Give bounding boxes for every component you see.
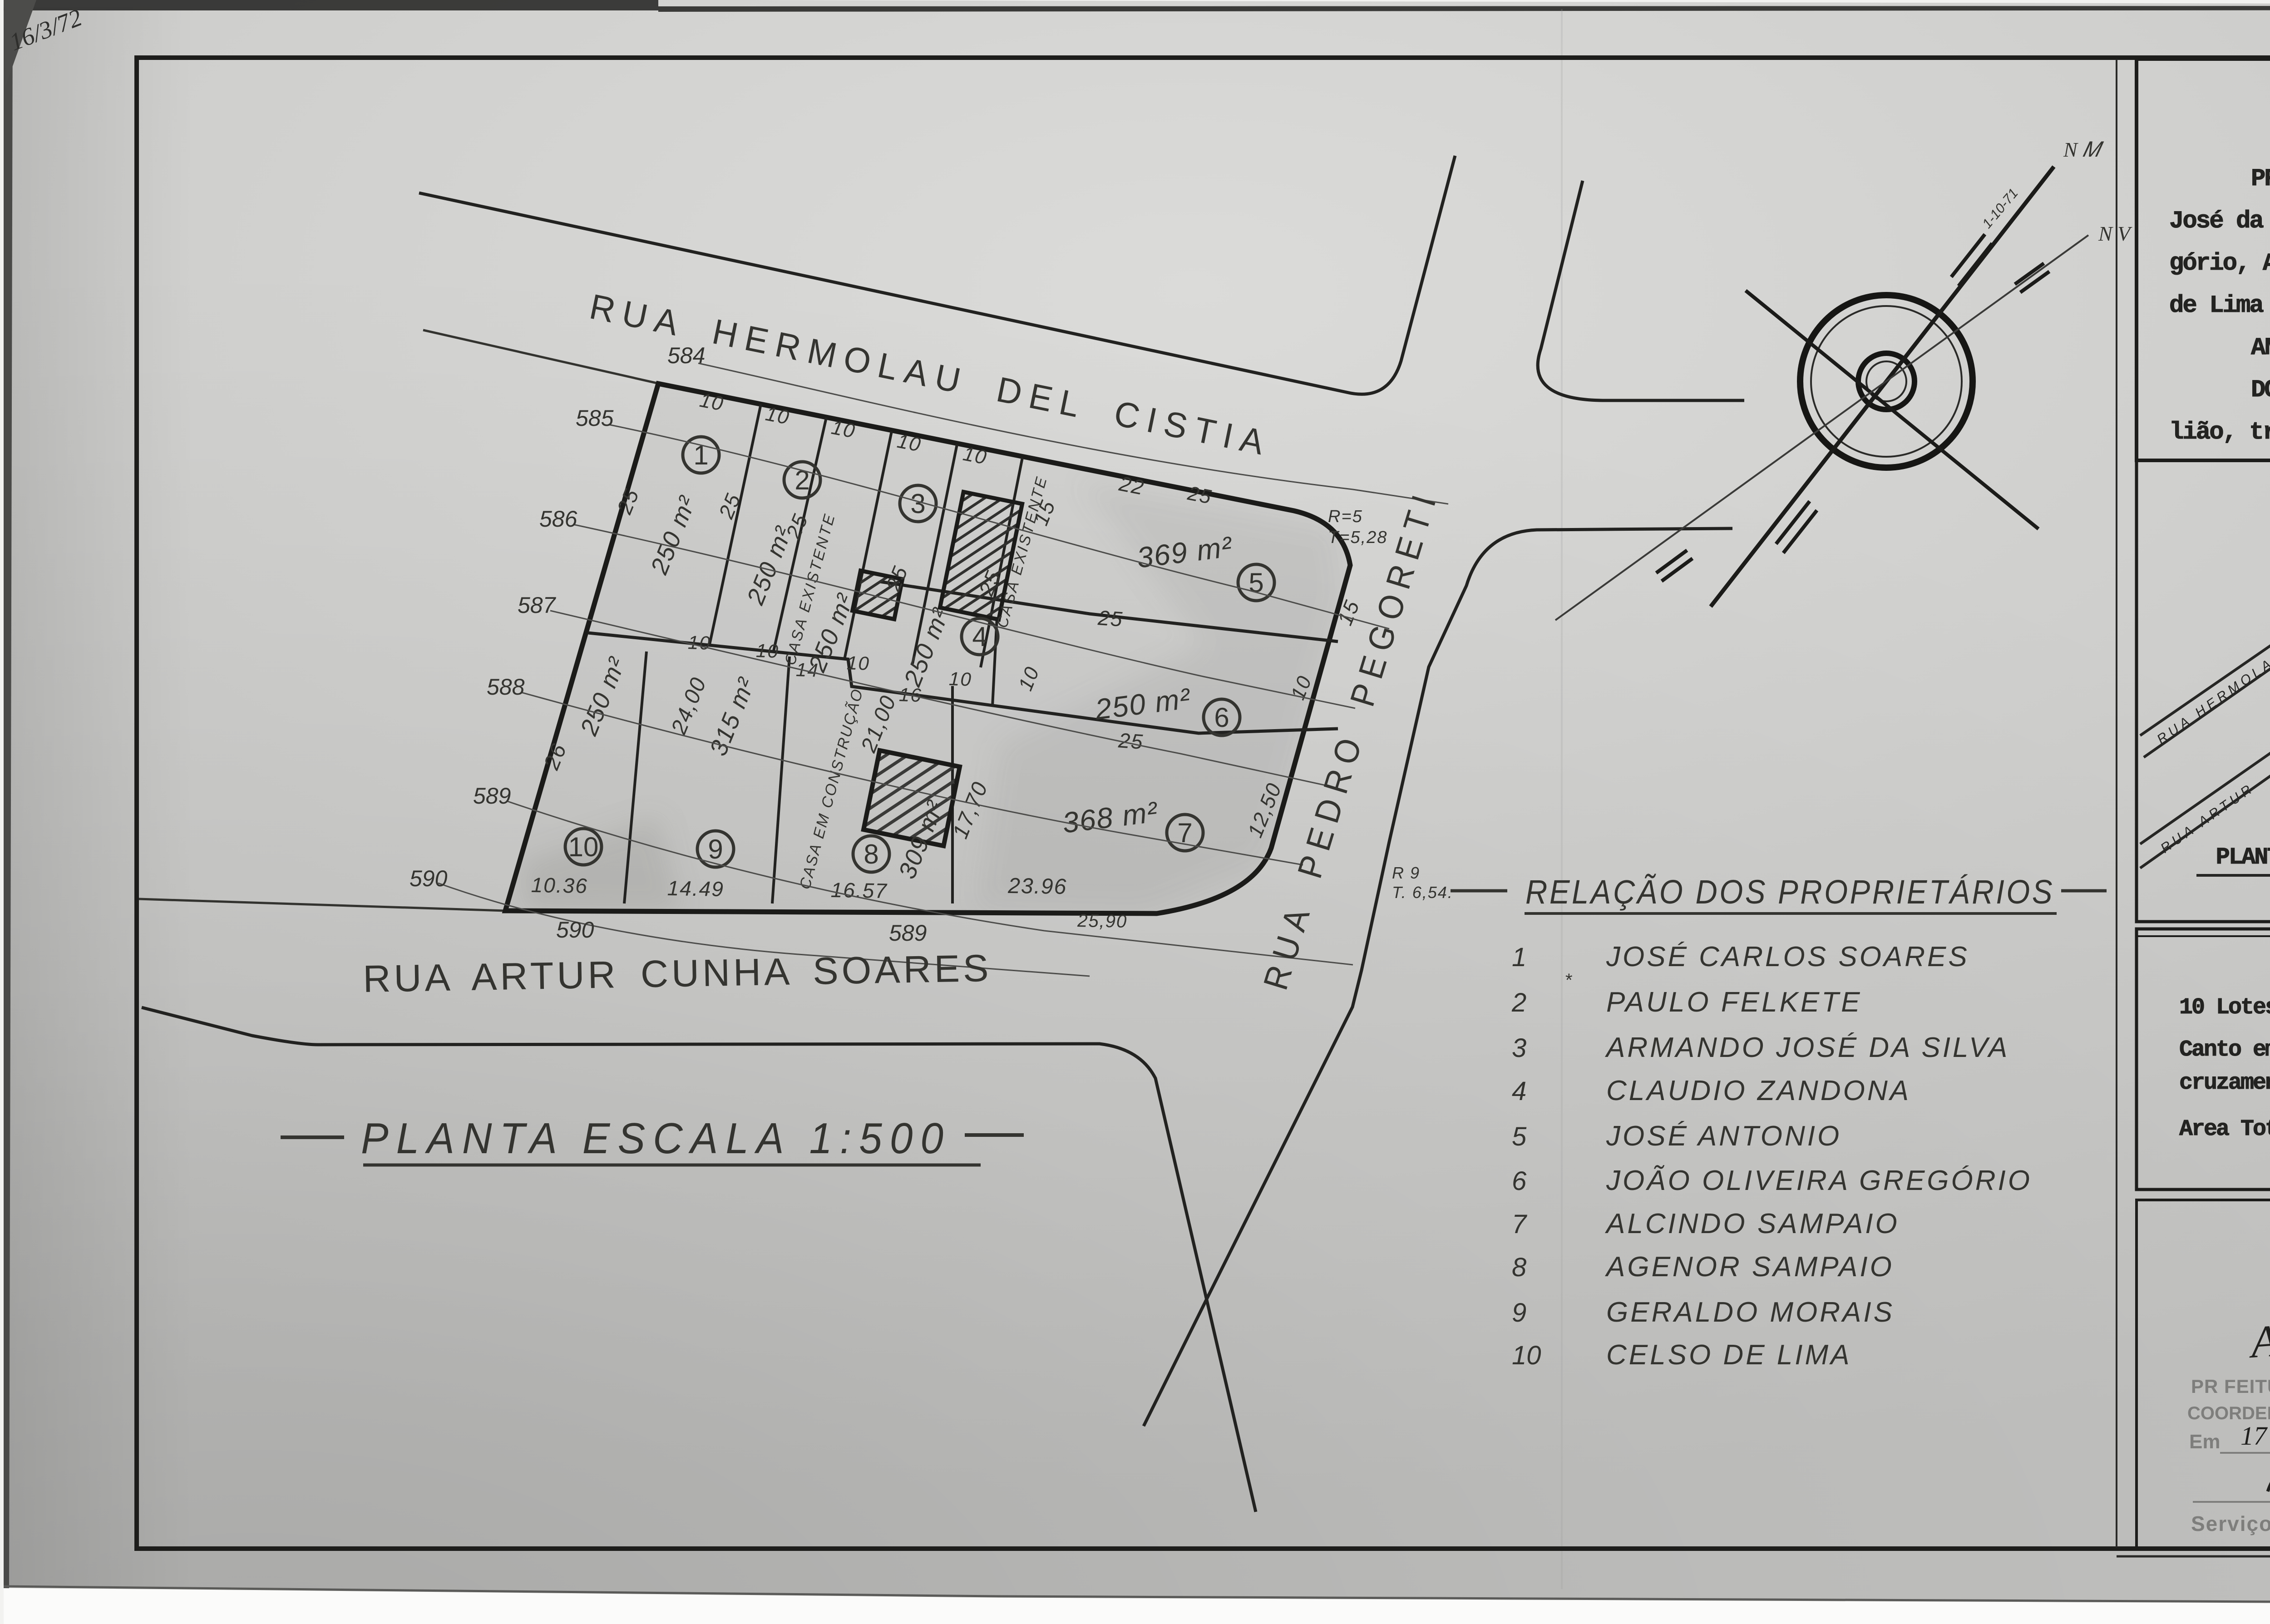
svg-text:PLANTA ESCALA 1:500: PLANTA ESCALA 1:500 (361, 1114, 951, 1163)
svg-text:17: 17 (2240, 1421, 2268, 1451)
svg-text:25: 25 (1097, 606, 1124, 631)
svg-text:23.96: 23.96 (1007, 874, 1067, 899)
svg-text:José da Silva, Claudio Zandona: José da Silva, Claudio Zandona, José Ant… (2169, 207, 2270, 235)
svg-text:589: 589 (889, 920, 927, 946)
svg-text:R 9: R 9 (1392, 864, 1420, 882)
svg-text:gório, Alcindo Sampaio, Agenor: gório, Alcindo Sampaio, Agenor Sampaio, … (2169, 250, 2270, 277)
svg-text:4: 4 (972, 622, 987, 652)
svg-text:ARMANDO JOSÉ DA SILVA: ARMANDO JOSÉ DA SILVA (1604, 1032, 2009, 1063)
svg-text:10: 10 (764, 403, 791, 429)
svg-text:10: 10 (1512, 1341, 1541, 1370)
svg-text:10: 10 (829, 416, 857, 443)
svg-text:5: 5 (1512, 1122, 1527, 1151)
svg-text:PROPRITÁRIOS:- José Carlos So: PROPRITÁRIOS:- José Carlos Soares, Paulo… (2251, 165, 2270, 193)
svg-text:587: 587 (518, 592, 557, 618)
svg-text:586: 586 (539, 506, 577, 532)
svg-text:cruzamentos....... 15,00 m2: cruzamentos....... 15,00 m2 (2179, 1070, 2270, 1096)
svg-text:JOÃO OLIVEIRA GREGÓRIO: JOÃO OLIVEIRA GREGÓRIO (1606, 1165, 2032, 1196)
svg-text:ALCINDO SAMPAIO: ALCINDO SAMPAIO (1604, 1208, 1900, 1239)
svg-text:R=5: R=5 (1328, 507, 1363, 526)
svg-text:T=5,28: T=5,28 (1328, 528, 1387, 547)
svg-text:589: 589 (473, 783, 511, 809)
svg-text:COORDENADORIA DE OBRAS E URBAN: COORDENADORIA DE OBRAS E URBAN SMO (2187, 1403, 2270, 1423)
svg-text:22: 22 (1117, 471, 1146, 499)
svg-text:1: 1 (1512, 943, 1526, 972)
svg-text:Area Total..........2.876,00 m: Area Total..........2.876,00 m2 (2179, 1116, 2270, 1142)
svg-text:588: 588 (487, 674, 525, 700)
svg-text:9: 9 (1512, 1298, 1526, 1328)
svg-text:10: 10 (698, 389, 725, 415)
svg-text:Serviço de Expediente Secciona: Serviço de Expediente Seccional (2191, 1512, 2270, 1535)
svg-text:PAULO FELKETE: PAULO FELKETE (1606, 987, 1862, 1018)
svg-text:10: 10 (687, 632, 711, 654)
svg-text:2: 2 (1511, 988, 1526, 1017)
svg-text:3: 3 (1512, 1033, 1526, 1063)
svg-text:4: 4 (1512, 1076, 1526, 1106)
svg-text:10: 10 (568, 832, 599, 862)
svg-text:10: 10 (755, 640, 779, 662)
svg-text:590: 590 (556, 917, 594, 943)
svg-text:GERALDO MORAIS: GERALDO MORAIS (1606, 1297, 1895, 1328)
svg-text:T. 6,54.: T. 6,54. (1392, 883, 1453, 902)
svg-text:10: 10 (948, 668, 972, 690)
svg-text:N 𝑀: N 𝑀 (2063, 138, 2104, 161)
svg-text:CELSO DE LIMA: CELSO DE LIMA (1606, 1339, 1851, 1371)
svg-text:585: 585 (576, 405, 614, 431)
svg-text:10: 10 (895, 430, 923, 456)
svg-text:ANTIGO PROPRIETÁRIO: Dra. Ara: ANTIGO PROPRIETÁRIO: Dra. Aracelis Rodri… (2251, 334, 2270, 362)
svg-text:JOSÉ CARLOS SOARES: JOSÉ CARLOS SOARES (1606, 941, 1969, 972)
svg-text:8: 8 (1512, 1253, 1526, 1282)
svg-text:CLAUDIO ZANDONA: CLAUDIO ZANDONA (1606, 1075, 1911, 1106)
svg-text:AGENOR SAMPAIO: AGENOR SAMPAIO (1604, 1251, 1894, 1283)
svg-text:6: 6 (1214, 702, 1229, 733)
svg-text:8: 8 (864, 839, 878, 869)
svg-text:3: 3 (910, 489, 925, 519)
svg-text:14.49: 14.49 (667, 876, 724, 901)
svg-text:DOCUMENTO DE PROPRIEDADE: Es: DOCUMENTO DE PROPRIEDADE: Escritura públ… (2251, 376, 2270, 404)
svg-text:10: 10 (961, 443, 989, 469)
svg-text:10: 10 (846, 652, 870, 674)
svg-text:Em: Em (2189, 1431, 2220, 1453)
svg-text:25: 25 (1185, 482, 1214, 508)
svg-text:JOSÉ ANTONIO: JOSÉ ANTONIO (1606, 1121, 1841, 1152)
svg-text:6: 6 (1512, 1166, 1527, 1196)
svg-text:Canto em curva nos: Canto em curva nos (2179, 1037, 2270, 1063)
svg-text:16.57: 16.57 (830, 878, 888, 903)
svg-text:9: 9 (708, 834, 723, 864)
svg-text:10 Lotes..........2.861,00 m2: 10 Lotes..........2.861,00 m2 (2179, 995, 2270, 1021)
svg-text:*: * (1565, 970, 1573, 990)
svg-text:590: 590 (410, 866, 448, 891)
svg-text:7: 7 (1512, 1209, 1528, 1239)
svg-text:lião, transcrita no Cartorio d: lião, transcrita no Cartorio da 1º Circu… (2169, 419, 2270, 446)
svg-text:25,90: 25,90 (1077, 911, 1128, 932)
svg-text:de Lima: de Lima (2169, 292, 2264, 320)
svg-text:RELAÇÃO DOS PROPRIETÁRIOS: RELAÇÃO DOS PROPRIETÁRIOS (1525, 873, 2054, 911)
svg-text:PLANTA PARA LOCALIZAÇÃO: PLANTA PARA LOCALIZAÇÃO (2216, 844, 2270, 871)
svg-text:10.36: 10.36 (531, 873, 588, 898)
svg-text:PR FEITURA MUNICIPAL DE SOROCA: PR FEITURA MUNICIPAL DE SOROCABA (2191, 1376, 2270, 1397)
svg-text:N V: N V (2098, 222, 2132, 245)
